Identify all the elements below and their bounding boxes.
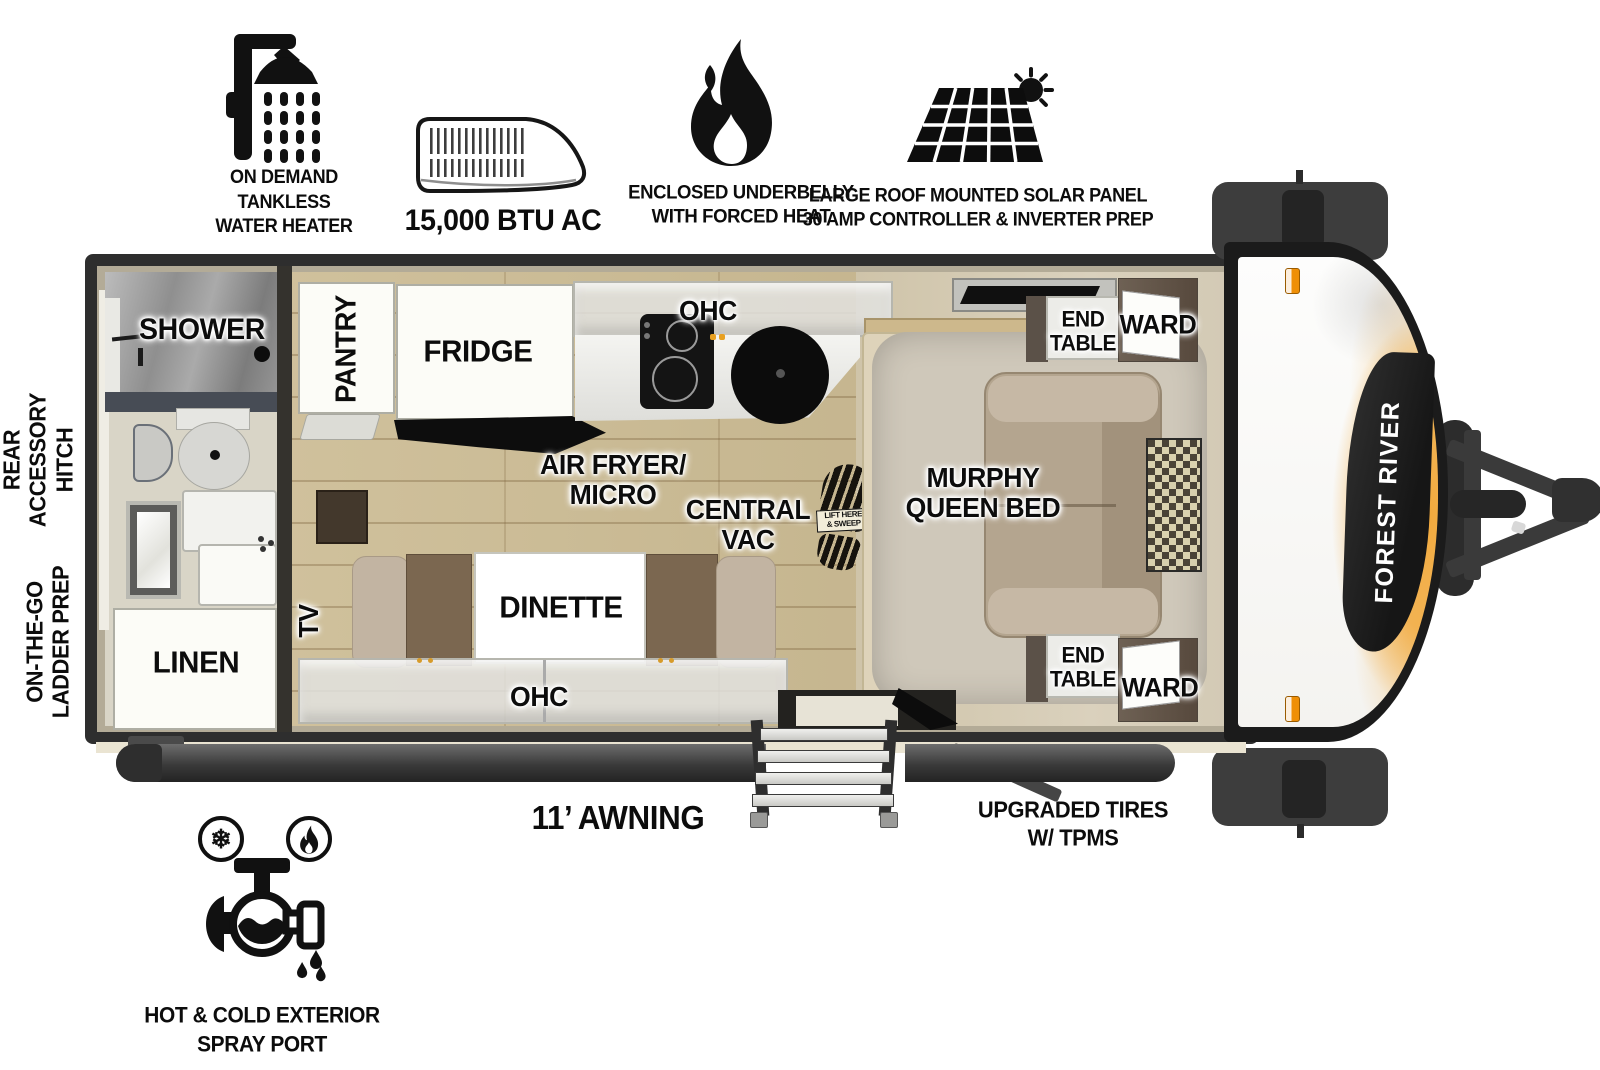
air-fryer-label: AIR FRYER/ MICRO (540, 450, 686, 510)
dinette-bench-left (406, 554, 472, 666)
awning-tube-left (116, 744, 766, 782)
marker-light-bottom (1285, 696, 1300, 722)
pantry-ledge (299, 414, 380, 440)
spray-port-label: HOT & COLD EXTERIOR SPRAY PORT (144, 1001, 379, 1058)
fridge-label: FRIDGE (424, 334, 533, 367)
stabilizer-bottom-stem (1297, 824, 1304, 838)
awning-tube-endcap (116, 744, 162, 782)
tires-label: UPGRADED TIRES W/ TPMS (978, 796, 1168, 851)
toilet-flush (210, 450, 220, 460)
end-table-top-label: END TABLE (1050, 307, 1116, 355)
step-foot-right (880, 812, 898, 828)
floorplan-diagram: ON DEMAND TANKLESS WATER HEATER 15,000 B… (0, 0, 1600, 1070)
ward-bottom-label: WARD (1122, 673, 1199, 702)
bathroom-wall (277, 266, 292, 732)
brand-name: FOREST RIVER (1371, 400, 1405, 604)
snowflake-icon: ❄ (210, 826, 232, 852)
shower-ledge (105, 298, 120, 394)
dinette-bench-right (646, 554, 718, 666)
step-tread-3 (755, 772, 892, 785)
sofa-arm-top (988, 376, 1158, 422)
burner-large (652, 356, 698, 402)
shower-label: SHOWER (139, 314, 265, 346)
flame-icon (686, 36, 776, 168)
ohc-hinge-dots (417, 658, 422, 663)
vanity-sink (198, 544, 277, 606)
linen-label: LINEN (153, 645, 239, 678)
stabilizer-top-stem (1296, 170, 1303, 184)
marker-light-top (1285, 268, 1300, 294)
sink-faucet-handles (710, 334, 716, 340)
end-table-top-post (1026, 296, 1048, 362)
vanity-faucet (258, 536, 264, 542)
cooktop (640, 314, 714, 409)
step-tread-1 (760, 728, 888, 741)
ac-label: 15,000 BTU AC (405, 205, 602, 237)
ac-unit-icon (416, 114, 588, 196)
cooktop-knobs (644, 322, 650, 328)
murphy-bed-label: MURPHY QUEEN BED (906, 463, 1061, 523)
step-foot-left (750, 812, 768, 828)
awning-tube-right (905, 744, 1175, 782)
tongue-jack (1450, 490, 1526, 518)
step-tread-4 (752, 794, 894, 807)
shower-handle (138, 348, 143, 366)
water-heater-label: ON DEMAND TANKLESS WATER HEATER (215, 166, 352, 240)
step-tread-2 (757, 750, 890, 763)
flame-badge (286, 816, 332, 862)
kitchen-ohc-label: OHC (679, 296, 737, 326)
rear-hitch-label: REAR ACCESSORY HITCH (0, 393, 78, 527)
ladder-prep-label: ON-THE-GO LADDER PREP (22, 566, 75, 718)
solar-panel-icon (903, 66, 1055, 178)
end-table-bottom-label: END TABLE (1050, 643, 1116, 691)
sink-drain (776, 369, 785, 378)
snowflake-badge: ❄ (198, 816, 244, 862)
boot-heel (815, 532, 862, 572)
dinette-label: DINETTE (499, 590, 622, 623)
awning-label: 11’ AWNING (532, 800, 705, 836)
ward-top-label: WARD (1120, 310, 1197, 339)
shower-icon (226, 26, 338, 168)
spray-faucet-icon (198, 858, 334, 982)
dinette-arm-right (716, 556, 776, 668)
pantry-label: PANTRY (331, 295, 362, 403)
entry-steps (748, 718, 898, 830)
bed-runner-checkered (1146, 438, 1202, 572)
tv-panel (316, 490, 368, 544)
dinette-arm-left (352, 556, 410, 668)
end-table-bottom-post (1026, 636, 1048, 702)
hitch-coupler (1552, 478, 1600, 522)
tv-label: TV (294, 604, 324, 637)
shower-drain (254, 346, 270, 362)
stabilizer-top-pad (1282, 190, 1324, 248)
sofa-arm-bottom (988, 588, 1158, 634)
living-ohc-label: OHC (510, 682, 568, 712)
bath-window (130, 505, 177, 595)
vanity-counter (182, 490, 277, 552)
stabilizer-bottom-pad (1282, 760, 1326, 818)
central-vac-label: CENTRAL VAC (686, 495, 810, 555)
flame-small-icon (299, 825, 319, 854)
solar-label: LARGE ROOF MOUNTED SOLAR PANEL 30 AMP CO… (803, 184, 1154, 232)
